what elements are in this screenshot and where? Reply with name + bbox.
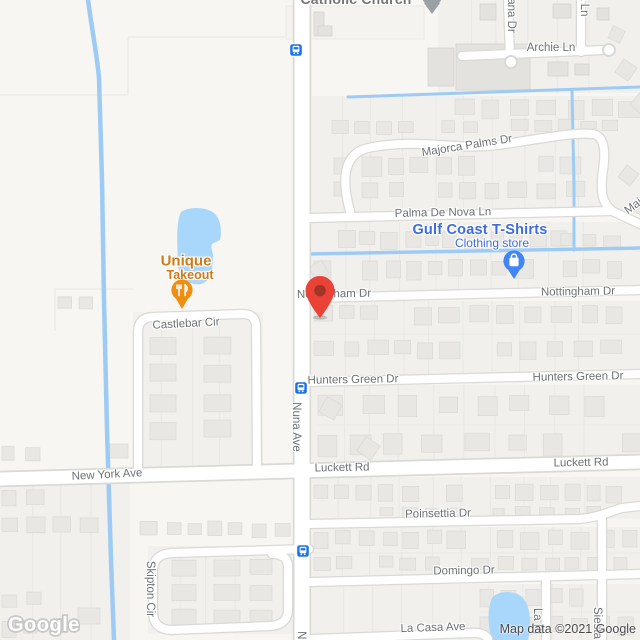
street-label-hunters-green-dr-west: Hunters Green Dr <box>308 373 399 387</box>
google-logo[interactable]: Google <box>4 610 80 638</box>
street-label-palma-de-nova-ln: Palma De Nova Ln <box>395 206 492 220</box>
map-canvas[interactable] <box>0 0 640 640</box>
destination-pin-icon[interactable] <box>302 274 338 320</box>
street-label-archie-ln: Archie Ln <box>527 42 576 54</box>
street-label-nuna-ave-south: Nuna Ave <box>295 631 307 640</box>
street-label-luckett-rd-east: Luckett Rd <box>553 457 608 470</box>
bus-stop-icon[interactable] <box>296 544 310 558</box>
church-marker-icon[interactable] <box>420 0 444 16</box>
poi-category-clothing-store: Clothing store <box>455 236 529 250</box>
map-viewport[interactable]: Catholic Church Archie Ln Zana Dr la Ln … <box>0 0 640 640</box>
street-label-hunters-green-dr-east: Hunters Green Dr <box>533 370 624 384</box>
bus-stop-icon[interactable] <box>289 43 303 57</box>
street-label-luckett-rd-west: Luckett Rd <box>314 462 369 475</box>
takeout-marker-icon[interactable] <box>170 279 194 310</box>
street-label-nuna-ave: Nuna Ave <box>290 402 302 452</box>
street-label-la-ln: la Ln <box>578 0 590 16</box>
svg-text:Google: Google <box>8 614 80 636</box>
street-label-skipton-cir: Skipton Cir <box>144 561 156 617</box>
poi-label-unique[interactable]: Unique <box>161 253 212 270</box>
street-label-nottingham-dr-east: Nottingham Dr <box>541 285 615 298</box>
map-attribution: Map data ©2021 Google <box>500 622 636 636</box>
street-label-poinsettia-dr: Poinsettia Dr <box>405 507 471 520</box>
street-label-zana-dr: Zana Dr <box>505 0 517 33</box>
shopping-bag-marker-icon[interactable] <box>502 250 526 280</box>
street-label-la-casa-ave: La Casa Ave <box>400 621 465 635</box>
poi-label-catholic-church[interactable]: Catholic Church <box>300 0 411 7</box>
bus-stop-icon[interactable] <box>294 381 308 395</box>
street-label-domingo-dr: Domingo Dr <box>433 564 495 577</box>
